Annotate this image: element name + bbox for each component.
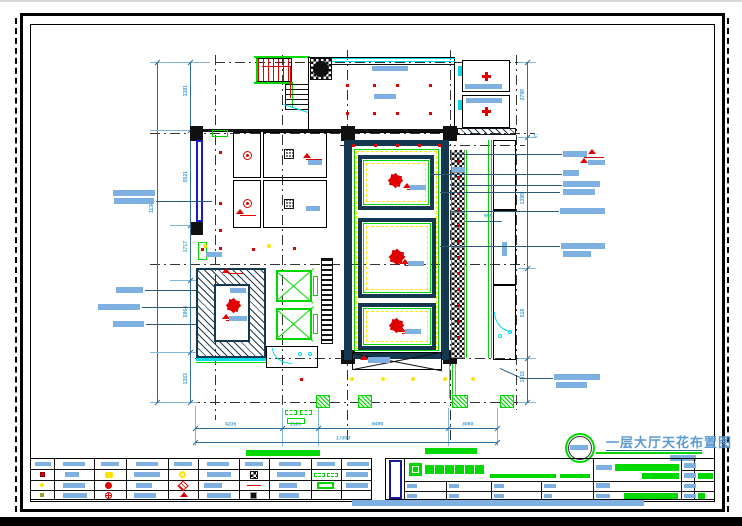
legend-header (279, 462, 301, 466)
elevator-2 (276, 308, 312, 340)
title-underline (606, 450, 702, 451)
sprinkler-icon (219, 229, 222, 232)
legend-checker-box-icon (250, 471, 258, 479)
legend-yellow-dot-icon (40, 483, 44, 487)
legend-header (174, 462, 192, 466)
green-text-block (615, 464, 679, 471)
elevator-1 (276, 270, 312, 302)
company-name-block (455, 465, 464, 474)
callout-text (113, 321, 144, 327)
green-rule (490, 474, 556, 478)
sprinkler-icon (429, 84, 432, 87)
grid-bubble-label: C (534, 134, 538, 139)
text-block (229, 316, 247, 321)
room-d (263, 180, 327, 228)
legend-header (245, 462, 263, 466)
text-block (372, 66, 408, 71)
leader-line (430, 174, 562, 175)
green-rect-mark (287, 418, 305, 424)
column (341, 126, 355, 141)
chandelier-icon (228, 300, 239, 311)
downlight-icon (381, 377, 385, 381)
mosaic-dot (457, 224, 460, 227)
text-block (308, 160, 322, 165)
callout-text (561, 243, 605, 249)
dim-text: 4235 (225, 422, 236, 427)
text-block (306, 206, 320, 211)
leader-line (455, 154, 562, 155)
green-dash-mark (300, 410, 312, 415)
mosaic-green-edge (451, 150, 452, 358)
green-text-block (624, 493, 678, 499)
leader-arrow (360, 355, 368, 360)
leader-line (146, 324, 196, 325)
legend-olive-dot-icon (40, 493, 44, 497)
cyan-line (449, 364, 450, 398)
title-block (385, 458, 715, 500)
green-text-block (698, 473, 713, 479)
ceiling-lamp-icon (243, 151, 252, 160)
gridline-v (282, 55, 283, 435)
leader-line (156, 201, 212, 202)
callout-text (560, 208, 605, 214)
downlight-icon (443, 377, 447, 381)
page-bottom-bar (0, 517, 742, 526)
text-block (452, 167, 465, 172)
sprinkler-icon (373, 112, 376, 115)
sprinkler-icon (374, 144, 377, 147)
legend-header (136, 462, 158, 466)
room-b (263, 132, 327, 178)
callout-text (554, 374, 600, 380)
legend-yellow-ring-icon (179, 471, 186, 478)
sprinkler-icon (429, 112, 432, 115)
gridline-h (150, 402, 535, 403)
leader-arrow (588, 149, 596, 154)
legend-header (347, 462, 369, 466)
window-edge (332, 64, 455, 65)
text-block (684, 494, 696, 498)
callout-text (113, 190, 155, 196)
sprinkler-icon (293, 247, 296, 250)
dim-text: 3381 (183, 85, 188, 96)
company-name-block (475, 465, 484, 474)
mosaic-border-band (452, 150, 465, 358)
legend-table (30, 458, 372, 500)
mosaic-dot (457, 240, 460, 243)
text-block (449, 484, 459, 488)
text-block (368, 357, 390, 363)
lobby-bottom-green (196, 362, 266, 363)
mosaic-dot (457, 288, 460, 291)
legend-red-box-icon (40, 472, 45, 477)
ceiling-lamp-icon (243, 199, 252, 208)
legend-text (204, 483, 222, 488)
cyan-dot (308, 352, 312, 356)
callout-text (563, 189, 595, 195)
lamp-flower-icon (482, 72, 490, 80)
cyan-dot (298, 352, 302, 356)
callout-text (98, 304, 140, 310)
downlight-icon (203, 244, 207, 248)
legend-text (207, 472, 231, 477)
green-column (358, 395, 372, 408)
legend-header (317, 462, 335, 466)
sprinkler-icon (346, 84, 349, 87)
leader-arrow (236, 209, 244, 214)
green-text-block (425, 448, 477, 454)
legend-text (136, 483, 152, 488)
callout-text (563, 251, 591, 257)
text-block (684, 463, 696, 468)
mosaic-dot (457, 336, 460, 339)
legend-text (277, 472, 305, 477)
company-name-block (465, 465, 474, 474)
column (443, 126, 457, 141)
sprinkler-icon (352, 144, 355, 147)
downlight-icon (350, 377, 354, 381)
leader-arrow (303, 153, 311, 158)
legend-text (134, 493, 156, 498)
detail-bubble-text (570, 445, 588, 450)
legend-header (63, 462, 85, 466)
legend-text (65, 472, 79, 477)
titleblock-spine (389, 460, 402, 499)
text-block (684, 473, 696, 478)
downlight-icon (267, 244, 271, 248)
dim-line-bottom-chain (195, 428, 497, 429)
stair-upper-flight (256, 58, 292, 82)
room-right-1 (493, 140, 516, 210)
leader-underline (228, 273, 244, 274)
legend-text (346, 483, 368, 488)
leader-underline (240, 215, 256, 216)
dim-text: 1717 (183, 241, 188, 252)
text-block (596, 494, 610, 498)
text-block (544, 494, 552, 498)
drawing-title: 一层大厅天花布置图 (606, 436, 732, 449)
hall-wall-left (344, 140, 352, 360)
sprinkler-icon (373, 84, 376, 87)
text-block (206, 252, 222, 257)
legend-green-dash-icon (314, 473, 325, 477)
green-line (491, 140, 492, 358)
leader-line (520, 378, 553, 379)
mosaic-dot (457, 272, 460, 275)
company-logo-inner (412, 466, 419, 473)
leader-line (440, 192, 560, 193)
callout-text (588, 160, 605, 165)
text-block (596, 483, 610, 488)
stair-path (290, 66, 291, 98)
leader-line (452, 211, 559, 212)
mosaic-dot (457, 320, 460, 323)
binding-margin-left (15, 18, 17, 512)
callout-text (563, 170, 579, 176)
wall (355, 129, 445, 132)
sprinkler-icon (219, 247, 222, 250)
elevator-door (313, 314, 318, 334)
legend-text (63, 483, 85, 488)
dim-text: 2788 (520, 89, 525, 100)
dim-line-right-chain (527, 62, 528, 402)
sprinkler-icon (396, 84, 399, 87)
lobby-bottom-band (196, 358, 266, 361)
text-block (405, 329, 421, 334)
green-column (452, 395, 468, 408)
company-name-block (425, 465, 434, 474)
legend-header (35, 462, 51, 466)
legend-text (279, 493, 299, 498)
text-block (466, 98, 502, 103)
green-column (316, 395, 330, 408)
legend-text (63, 493, 87, 498)
sprinkler-icon (219, 151, 222, 154)
sprinkler-icon (219, 202, 222, 205)
dim-text: 1398 (520, 193, 525, 204)
green-line (452, 364, 453, 398)
hall-wall-right (441, 140, 449, 360)
dim-text: 8490 (372, 422, 383, 427)
mosaic-dot (457, 160, 460, 163)
mosaic-dot (457, 304, 460, 307)
escalator-strip (321, 258, 333, 344)
legend-red-circle-cross-icon (105, 492, 112, 499)
text-block (684, 484, 696, 488)
sprinkler-icon (396, 144, 399, 147)
legend-header (101, 462, 119, 466)
cyan-line (455, 364, 456, 398)
green-column (500, 395, 514, 408)
dim-text: 5521 (183, 171, 188, 182)
green-dash-mark (285, 410, 297, 415)
dim-line-left-total (157, 62, 158, 402)
downlight-icon (471, 377, 475, 381)
callout-text (556, 382, 587, 388)
dim-text: 1315 (520, 371, 525, 382)
text-block (407, 494, 417, 498)
legend-green-rect-icon (317, 482, 334, 489)
green-rule (560, 474, 590, 478)
text-block (374, 94, 396, 99)
dim-text: 3060 (462, 422, 473, 427)
company-name-block (435, 465, 444, 474)
access-panel-icon (284, 149, 294, 159)
title-green-rule (596, 452, 702, 454)
text-block (408, 261, 424, 266)
sprinkler-icon (300, 378, 303, 381)
legend-red-dot-arrow-icon (105, 482, 112, 489)
sprinkler-icon (418, 144, 421, 147)
window-band (332, 61, 455, 62)
green-line (488, 140, 489, 358)
text-block (230, 288, 246, 293)
company-name-block (445, 465, 454, 474)
text-block-vertical (502, 242, 507, 256)
gridline-h (150, 264, 346, 265)
callout-text (114, 198, 154, 204)
legend-text (134, 472, 160, 477)
sprinkler-icon (252, 248, 255, 251)
mosaic-dot (457, 176, 460, 179)
window-cyan-mark (458, 100, 462, 110)
text-block (407, 484, 417, 488)
green-rect-marker (212, 130, 228, 137)
leader-line (440, 246, 560, 247)
column (190, 126, 203, 141)
lamp-flower-icon (482, 107, 490, 115)
green-text-block (246, 450, 320, 456)
legend-yellow-double-dot-icon (105, 472, 113, 478)
green-text-block (642, 473, 679, 479)
sprinkler-icon (346, 112, 349, 115)
legend-text (346, 472, 368, 477)
callout-text (116, 287, 143, 293)
text-block (494, 484, 504, 488)
legend-text (207, 493, 231, 498)
wall-hatched (457, 128, 516, 135)
chandelier-icon (390, 175, 401, 186)
leader-line (145, 290, 196, 291)
leader-line (452, 185, 562, 186)
dim-ext (170, 280, 198, 281)
text-block (544, 484, 556, 488)
dim-line-bottom-total (195, 442, 497, 443)
legend-text (279, 483, 297, 488)
text-block (449, 494, 459, 498)
leader-line (142, 307, 196, 308)
cyan-dot (498, 334, 502, 338)
text-block (596, 465, 612, 470)
cyan-dot (508, 330, 512, 334)
sprinkler-icon (438, 144, 441, 147)
column (191, 222, 203, 235)
window-cyan-mark (458, 66, 462, 76)
leader-arrow (580, 158, 588, 163)
elevator-door (313, 276, 318, 296)
window-band (332, 58, 455, 59)
mosaic-green-edge (466, 150, 467, 358)
dim-ext (150, 62, 210, 63)
dim-text: 518 (520, 309, 525, 318)
callout-text (563, 181, 600, 187)
sprinkler-icon (396, 112, 399, 115)
text-block (494, 494, 504, 498)
text-block (410, 185, 426, 190)
dim-text: 17300 (336, 436, 350, 441)
green-square (698, 493, 705, 499)
footer-text-bar (352, 500, 644, 506)
dim-text: 1353 (183, 373, 188, 384)
gridline-v (516, 55, 517, 410)
wall-navy (196, 140, 203, 222)
page-top-edge (0, 0, 742, 2)
legend-header (207, 462, 229, 466)
sprinkler-icon (201, 248, 204, 251)
legend-red-flag-icon (180, 492, 188, 497)
gridline-v (215, 55, 216, 420)
stair-path (262, 66, 290, 67)
downlight-icon (411, 377, 415, 381)
legend-black-square-icon (251, 493, 256, 498)
cad-sheet: 3381 5521 1717 5864 1353 11388 2788 1398… (0, 0, 742, 526)
mosaic-dot (457, 256, 460, 259)
access-panel-icon (284, 199, 294, 209)
legend-green-dash-icon (327, 473, 338, 477)
text-block (465, 84, 502, 89)
legend-red-line-icon (247, 485, 261, 486)
